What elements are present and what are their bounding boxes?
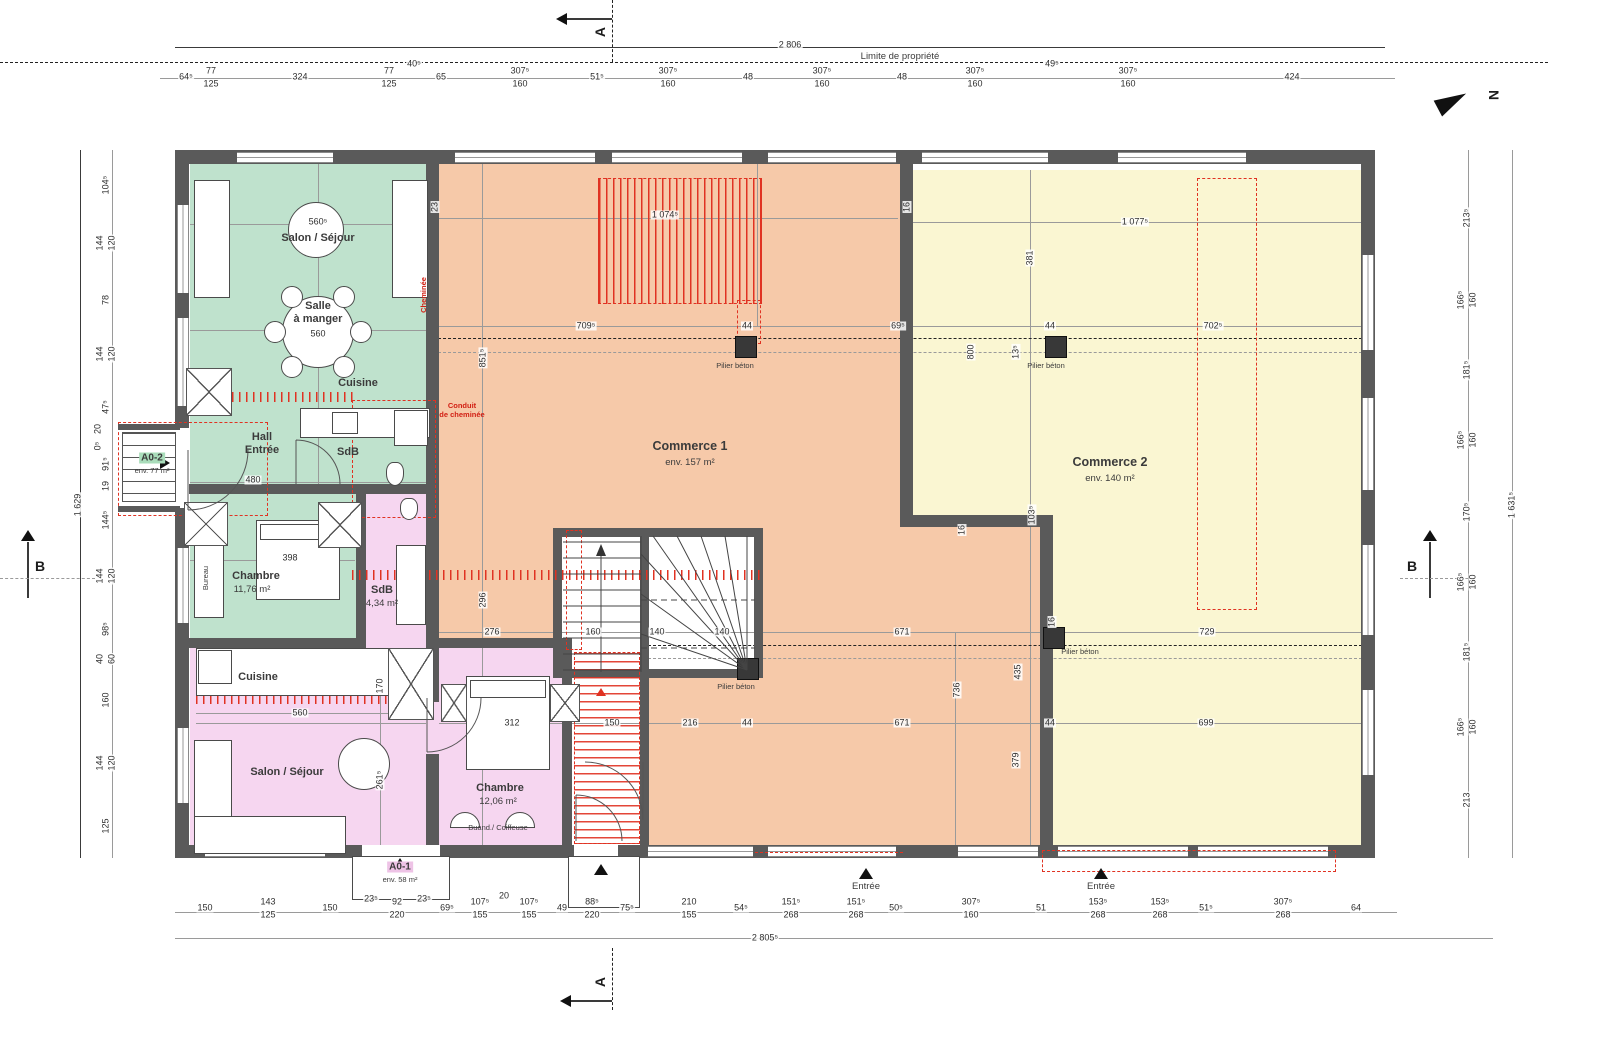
window [648,846,753,857]
door-arc [296,440,340,484]
dim-label: 307⁵ [510,67,531,76]
dim-label: 75⁵ [619,904,635,913]
north-letter: N [1486,90,1502,100]
wall-chambre-a01-right [562,648,572,848]
dim-label: 800 [967,343,976,360]
dim-label: 51⁵ [1198,904,1214,913]
red-hatched-shaft [598,178,762,304]
dim-label: 160 [659,80,676,89]
dim-label: 153⁵ [1088,898,1109,907]
dim-label: 40⁵ [406,60,422,69]
door-arc [427,698,481,752]
dim-label: 144 [96,345,105,362]
dim-line [955,632,956,845]
dim-label: 216 [681,719,698,728]
dim-label: 60 [108,653,117,665]
dim-label: 560⁵ [308,218,329,227]
section-a-letter-top: A [592,27,608,37]
room-label-salle-1: Salle [305,300,331,312]
dim-label: 120 [108,754,117,771]
dim-label: 170⁵ [1463,502,1472,523]
dim-label: 92 [391,898,403,907]
shaft-hatch-box [318,502,362,548]
apartment-label-a01: A0-1 [387,862,413,873]
dim-label: 324 [291,73,308,82]
porch-wall [118,506,180,512]
dim-label: 77 [383,67,395,76]
dim-label: 166⁵ [1457,572,1466,593]
fixture-shower [394,410,428,446]
room-area-commerce1: env. 157 m² [665,458,714,468]
dim-label: 140 [648,628,665,637]
dim-label: 69⁵ [890,322,906,331]
entrance-arrow [1094,868,1108,879]
dim-label: 107⁵ [519,898,540,907]
dim-label: 64 [1350,904,1362,913]
staircase [555,530,761,676]
chimney-duct-label-1: Conduit [448,402,476,410]
room-area-sdb-a01: 4,34 m² [366,599,398,609]
dim-label: 307⁵ [658,67,679,76]
section-b-letter-right: B [1407,558,1417,574]
dim-label: 48 [742,73,754,82]
dim-label: 40 [96,653,105,665]
wardrobe-hatch-box [550,684,580,722]
dim-label: 312 [503,719,520,728]
dim-label: 480 [244,476,261,485]
dim-label: 44 [741,719,753,728]
dim-label: 151⁵ [781,898,802,907]
dim-label: 181⁵ [1463,642,1472,663]
furniture-sink [332,412,358,434]
concrete-column [735,336,757,358]
furniture-sofa [194,180,230,298]
section-b-bar-right [1429,542,1431,598]
wall-a02-a01 [178,638,364,648]
dim-label: 44 [1044,719,1056,728]
window [177,205,189,293]
furniture-coffee-table [288,202,344,258]
dim-label: 54⁵ [733,904,749,913]
dim-label: 307⁵ [1118,67,1139,76]
dim-label: 144 [96,567,105,584]
room-label-chambre-a02: Chambre [232,570,280,582]
dim-label: 160 [584,628,601,637]
dim-label: 560 [291,709,308,718]
section-a-bar-bottom [570,1000,612,1002]
dim-label: 671 [893,628,910,637]
section-a-line-bottom [612,948,613,1010]
dim-label: 1 077⁵ [1121,218,1149,227]
window [1362,398,1374,490]
dim-label: 103⁵ [1028,505,1037,526]
dim-label: 51⁵ [589,73,605,82]
dim-line [196,723,1362,724]
dim-label: 0⁵ [94,441,103,452]
dim-label: 91⁵ [102,456,111,472]
dim-label: 160 [813,80,830,89]
dim-line [112,150,113,858]
red-dashed-canopy [1042,850,1336,872]
section-b-letter-left: B [35,558,45,574]
dim-label: 379 [1012,751,1021,768]
dim-label: 19 [102,480,111,492]
window [922,152,1048,163]
dim-label: 16 [903,201,912,213]
dim-label: 729 [1198,628,1215,637]
dim-label: 150 [321,904,338,913]
dim-label: 155 [471,911,488,920]
dim-label: 307⁵ [965,67,986,76]
red-arrow-up [596,688,606,696]
room-label-chambre-a01: Chambre [476,782,524,794]
dim-label: 144 [96,754,105,771]
dim-label: 125 [202,80,219,89]
wall-commerce-sep-v2 [1040,515,1053,845]
door-arc [576,795,622,841]
entrance-arrow [594,864,608,875]
desk-label: Bureau [202,566,210,590]
chimney-duct-label-2: de cheminée [439,411,484,419]
entrance-arrow [859,868,873,879]
dim-label: 65 [435,73,447,82]
dim-label: 160 [1469,431,1478,448]
dim-label: 144 [96,234,105,251]
dim-label: 160 [102,691,111,708]
room-label-cuisine-a01: Cuisine [238,671,278,683]
room-label-salon-a02: Salon / Séjour [281,232,354,244]
window [1362,255,1374,350]
dim-line [160,78,1395,79]
dim-label: 104⁵ [102,175,111,196]
dim-label: 107⁵ [470,898,491,907]
apartment-label-a02: A0-2 [139,453,165,464]
room-label-hall-1: Hall [252,431,272,443]
window [1118,152,1246,163]
dim-label: 296 [479,591,488,608]
room-label-salle-2: à manger [294,313,343,325]
room-label-commerce2: Commerce 2 [1072,456,1147,470]
furniture-chair [333,286,355,308]
dim-label: 23⁵ [363,895,379,904]
dim-label: 2 806 [778,41,803,50]
dim-label: 160 [1119,80,1136,89]
dim-label: 155 [680,911,697,920]
apartment-area-a02: env. 77 m² [135,467,170,475]
dim-label: 170 [376,677,385,694]
dim-label: 276 [483,628,500,637]
dim-label: 50⁵ [888,904,904,913]
dim-label: 98⁵ [102,621,111,637]
dim-label: 160 [511,80,528,89]
dim-label: 166⁵ [1457,430,1466,451]
fixture-wc [400,498,418,520]
wall-chambre-a01-top [426,638,572,648]
dim-label: 220 [583,911,600,920]
furniture-chair [281,286,303,308]
section-a-line-top [612,0,613,62]
window [177,728,189,803]
chimney-label: Cheminée [420,277,428,313]
dim-label: 268 [1274,911,1291,920]
dim-label: 307⁵ [961,898,982,907]
column-label: Pilier béton [717,683,755,691]
dim-label: 69⁵ [439,904,455,913]
dim-label: 125 [259,911,276,920]
fixture-wc [386,462,404,486]
dim-label: 268 [782,911,799,920]
room-area-chambre-a02: 11,76 m² [234,585,271,595]
dim-label: 736 [953,681,962,698]
window [768,152,896,163]
property-line [0,62,1548,63]
dim-label: 261⁵ [376,770,385,791]
concrete-column [1043,627,1065,649]
dim-label: 2 805⁵ [751,934,779,943]
dim-label: 51 [1035,904,1047,913]
dim-label: 153⁵ [1150,898,1171,907]
dim-label: 20 [94,423,103,435]
dim-label: 424 [1283,73,1300,82]
dim-label: 151⁵ [846,898,867,907]
dim-label: 23 [431,201,440,213]
room-label-commerce1: Commerce 1 [652,440,727,454]
dim-label: 49⁵ [1044,60,1060,69]
entrance-label: Entrée [1087,882,1115,892]
room-label-cuisine-a02: Cuisine [338,377,378,389]
room-label-sdb-a01: SdB [371,584,393,596]
dim-label: 143 [259,898,276,907]
dim-label: 160 [1469,718,1478,735]
dim-label: 268 [847,911,864,920]
porch-wall [118,424,180,430]
dim-label: 64⁵ [178,73,194,82]
dim-label: 268 [1151,911,1168,920]
window [237,152,333,163]
section-a-arrow-top [556,13,567,25]
entrance-label: Entrée [852,882,880,892]
section-a-letter-bottom: A [592,977,608,987]
column-label: Pilier béton [1061,648,1099,656]
dim-label: 560 [309,330,326,339]
dim-label: 181⁵ [1463,360,1472,381]
column-label: Pilier béton [1027,362,1065,370]
dim-label: 398 [281,554,298,563]
room-area-commerce2: env. 140 m² [1085,474,1134,484]
dim-label: 88⁵ [584,898,600,907]
dim-label: 20 [498,892,510,901]
dim-label: 213 [1463,791,1472,808]
dim-label: 16 [1048,616,1057,628]
dim-label: 381 [1026,249,1035,266]
furniture-pillow [470,680,546,698]
concrete-column [1045,336,1067,358]
red-dashed-line [755,852,903,853]
dim-label: 44 [1044,322,1056,331]
dim-label: 709⁵ [576,322,597,331]
dim-label: 13⁵ [1012,344,1021,360]
apartment-area-a01: env. 58 m² [383,876,418,884]
dim-label: 125 [380,80,397,89]
column-label: Pilier béton [716,362,754,370]
room-label-hall-2: Entrée [245,444,279,456]
room-area-chambre-a01: 12,06 m² [479,797,517,807]
dim-label: 213⁵ [1463,208,1472,229]
furniture-chair [264,321,286,343]
window [1362,690,1374,775]
room-label-salon-a01: Salon / Séjour [250,766,323,778]
dim-label: 851⁵ [479,348,488,369]
dim-label: 47⁵ [102,399,111,415]
dim-label: 671 [893,719,910,728]
dim-label: 23⁵ [416,895,432,904]
dim-label: 160 [962,911,979,920]
window [455,152,595,163]
dim-label: 1 074⁵ [651,211,679,220]
dim-label: 268 [1089,911,1106,920]
furniture-sofa [194,816,346,854]
dim-label: 210 [680,898,697,907]
dim-line [175,938,1493,939]
window [1362,545,1374,635]
room-label-sdb-a02: SdB [337,446,359,458]
dim-label: 166⁵ [1457,717,1466,738]
dim-label: 1 631⁵ [1508,491,1517,519]
dim-label: 220 [388,911,405,920]
wall-commerce-sep-v1 [900,164,913,524]
dim-label: 150 [196,904,213,913]
section-b-line-left [0,578,95,579]
dim-label: 120 [108,345,117,362]
section-b-bar-left [27,542,29,598]
window [612,152,742,163]
dim-label: 160 [1469,573,1478,590]
dim-label: 155 [520,911,537,920]
furniture-chair [281,356,303,378]
dim-label: 16 [958,524,967,536]
furniture-fridge [198,650,232,684]
dim-label: 78 [102,294,111,306]
north-arrow-icon [1434,86,1471,117]
dim-label: 699 [1197,719,1214,728]
dim-label: 48 [896,73,908,82]
dim-label: 125 [102,817,111,834]
dim-label: 160 [1469,291,1478,308]
dim-label: 150 [603,719,620,728]
dim-label: 120 [108,234,117,251]
furniture-chair [350,321,372,343]
dim-label: 77 [205,67,217,76]
window [958,846,1038,857]
section-b-arrow-right [1423,530,1437,541]
dim-label: 1 629 [74,493,83,518]
shaft-hatch-box [186,368,232,416]
window [177,548,189,623]
dim-label: 49 [556,904,568,913]
dim-label: 140 [713,628,730,637]
property-limit-label: Limite de propriété [861,52,940,62]
dim-label: 144⁵ [102,510,111,531]
furniture-chair [333,356,355,378]
dim-label: 702⁵ [1203,322,1224,331]
dim-label: 166⁵ [1457,290,1466,311]
dim-label: 307⁵ [812,67,833,76]
dim-label: 44 [741,322,753,331]
floor-plan: A A B B N Limite de propriété Salon / Sé… [0,0,1600,1062]
dim-label: 307⁵ [1273,898,1294,907]
section-a-arrow-bottom [560,995,571,1007]
dim-label: 120 [108,567,117,584]
dim-label: 435 [1014,663,1023,680]
red-dashed-strip-commerce2 [1197,178,1257,610]
section-b-arrow-left [21,530,35,541]
fixture-bathtub [396,545,426,625]
door-arc [188,450,248,510]
dim-label: 160 [966,80,983,89]
section-a-bar-top [566,18,612,20]
room-label-buanderie: Buand./ Coiffeuse [468,824,528,832]
